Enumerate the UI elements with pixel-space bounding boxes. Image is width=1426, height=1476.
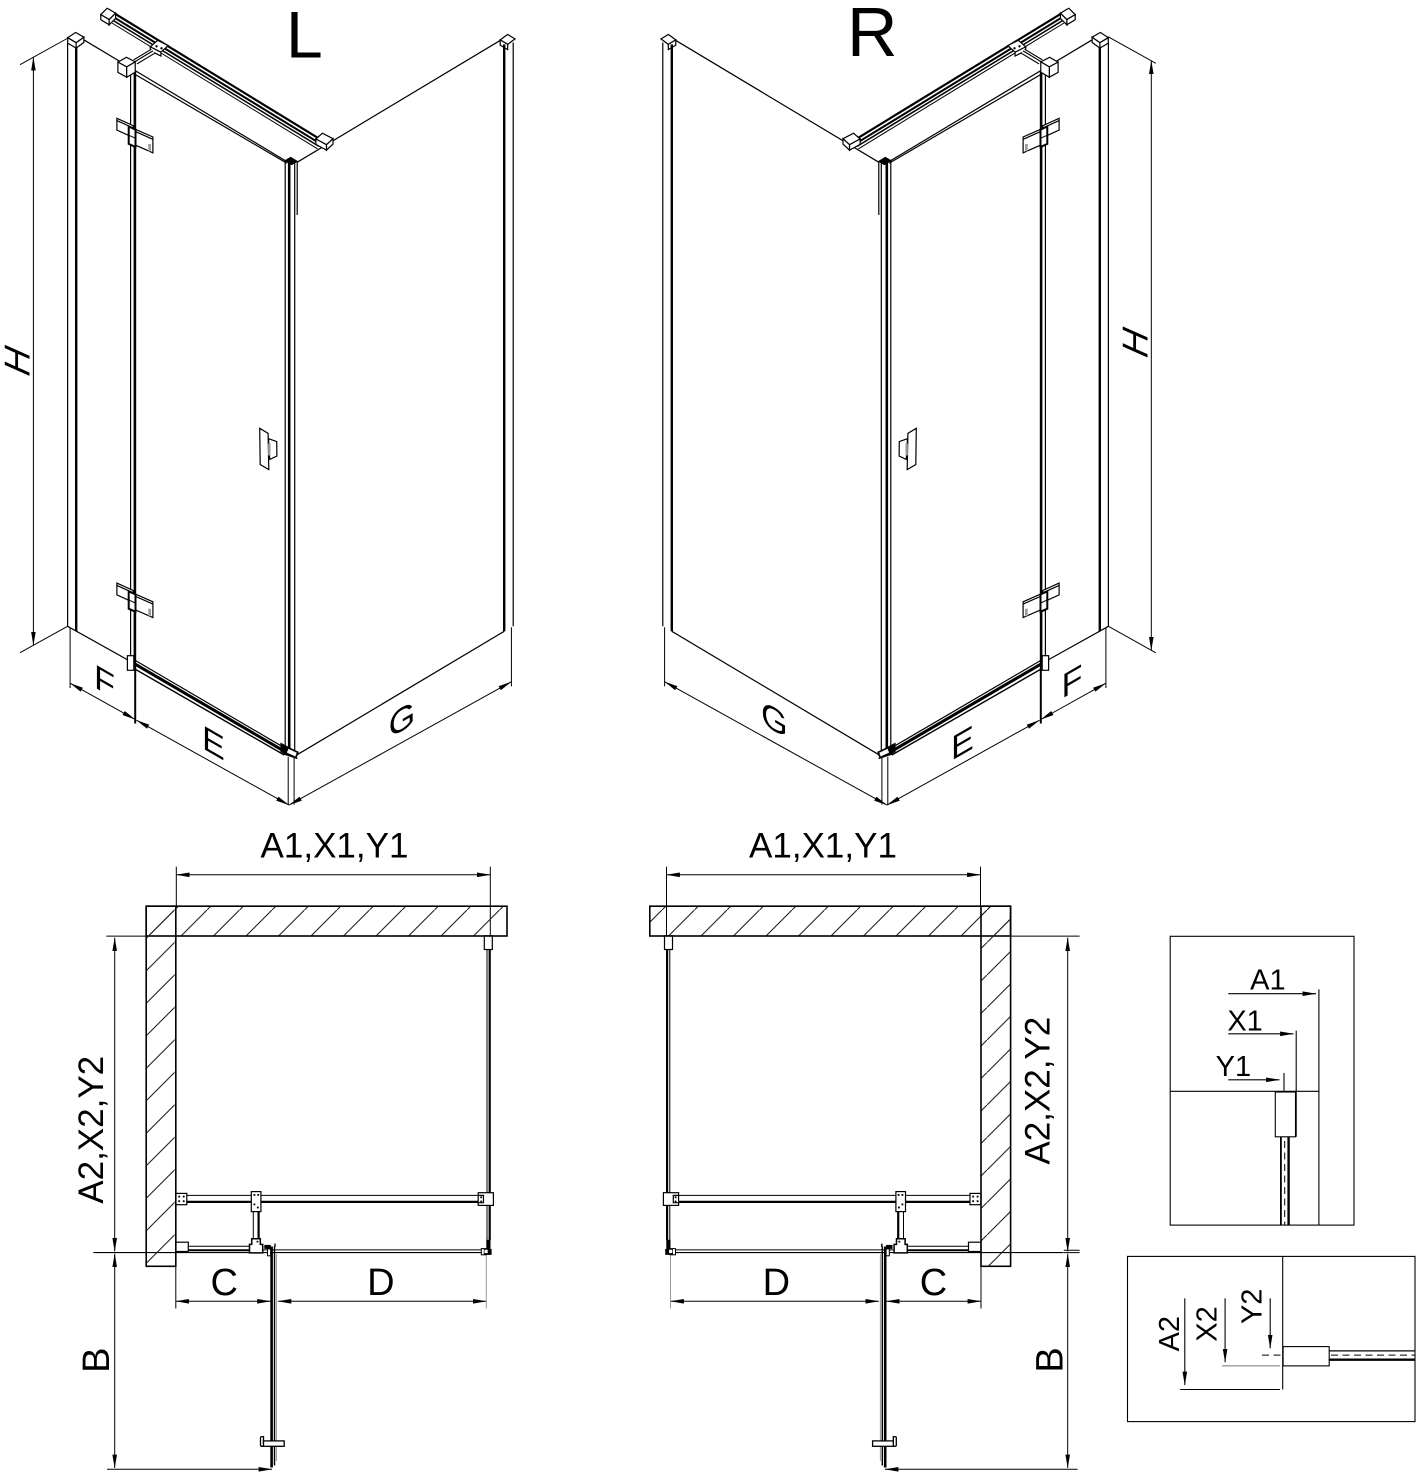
svg-text:H: H bbox=[1115, 324, 1155, 361]
svg-text:H: H bbox=[0, 342, 38, 379]
svg-text:B: B bbox=[76, 1348, 118, 1373]
svg-text:D: D bbox=[367, 1262, 394, 1304]
svg-text:A2,X2,Y2: A2,X2,Y2 bbox=[1019, 1017, 1058, 1165]
svg-text:X1: X1 bbox=[1227, 1006, 1262, 1038]
svg-text:E: E bbox=[202, 717, 225, 768]
svg-text:A2,X2,Y2: A2,X2,Y2 bbox=[72, 1056, 111, 1204]
svg-text:X2: X2 bbox=[1192, 1306, 1224, 1341]
svg-text:F: F bbox=[94, 656, 115, 706]
svg-text:A1: A1 bbox=[1250, 964, 1285, 996]
svg-text:A1,X1,Y1: A1,X1,Y1 bbox=[261, 827, 409, 866]
svg-text:D: D bbox=[763, 1262, 790, 1304]
svg-text:R: R bbox=[847, 0, 898, 71]
svg-text:G: G bbox=[389, 693, 415, 746]
svg-text:C: C bbox=[210, 1262, 237, 1304]
svg-text:E: E bbox=[951, 717, 974, 768]
svg-text:F: F bbox=[1062, 656, 1083, 706]
svg-text:A1,X1,Y1: A1,X1,Y1 bbox=[749, 827, 897, 866]
svg-text:Y1: Y1 bbox=[1216, 1051, 1251, 1083]
svg-text:B: B bbox=[1030, 1347, 1072, 1372]
svg-text:C: C bbox=[920, 1262, 947, 1304]
svg-text:L: L bbox=[286, 0, 323, 72]
svg-text:A2: A2 bbox=[1154, 1316, 1186, 1351]
svg-text:Y2: Y2 bbox=[1237, 1289, 1269, 1324]
